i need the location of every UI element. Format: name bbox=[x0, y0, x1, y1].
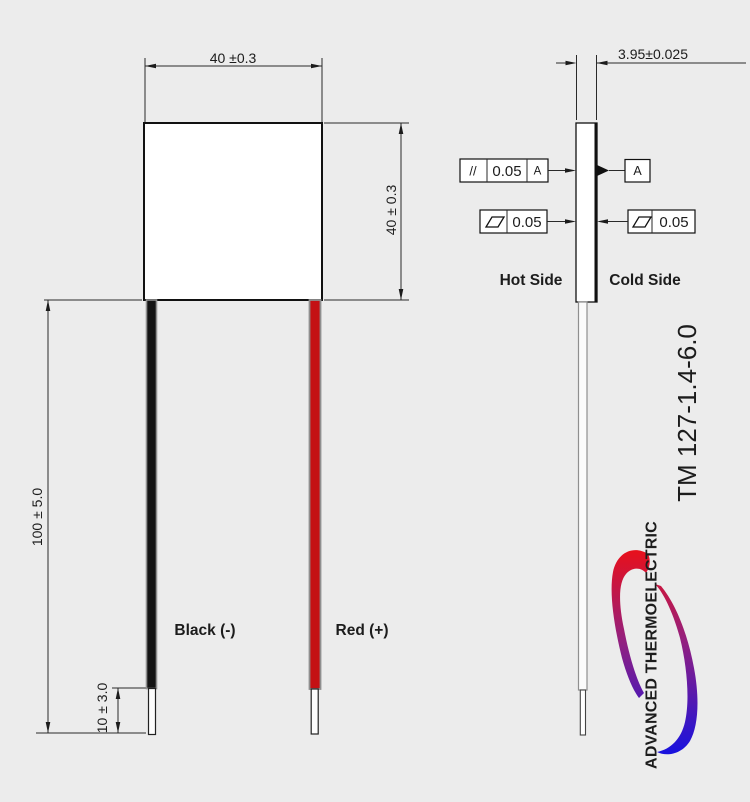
arrowhead-down-icon bbox=[116, 722, 121, 733]
thickness-dimension-text: 3.95±0.025 bbox=[618, 46, 688, 62]
side-lead-wire bbox=[579, 302, 588, 735]
arrowhead-up-icon bbox=[46, 300, 51, 311]
red-lead-label: Red (+) bbox=[336, 622, 389, 639]
flatness-frame-cold: 0.05 bbox=[597, 210, 695, 233]
arrowhead-left-icon bbox=[145, 64, 156, 69]
hot-side-label: Hot Side bbox=[500, 272, 563, 289]
red-wire-bare-tip bbox=[311, 689, 318, 734]
black-wire-insulation bbox=[147, 300, 157, 689]
black-lead-wire bbox=[147, 300, 157, 735]
arrowhead-down-icon bbox=[399, 289, 404, 300]
side-wire-insulation bbox=[579, 302, 588, 690]
arrowhead-up-icon bbox=[399, 123, 404, 134]
lead-length-text: 100 ± 5.0 bbox=[29, 488, 45, 546]
side-wire-bare-tip bbox=[580, 690, 585, 735]
datum-flag: A bbox=[597, 160, 650, 183]
lead-length-dimension: 100 ± 5.0 bbox=[29, 300, 146, 733]
cold-side-label: Cold Side bbox=[609, 272, 681, 289]
logo-swoosh-right bbox=[655, 584, 697, 754]
height-dimension-text: 40 ± 0.3 bbox=[383, 185, 399, 236]
module-side-profile bbox=[576, 123, 597, 302]
bare-lead-dimension: 10 ± 3.0 bbox=[94, 683, 147, 734]
module-front-face bbox=[144, 123, 322, 300]
arrowhead-down-icon bbox=[46, 722, 51, 733]
red-wire-insulation bbox=[310, 300, 321, 689]
arrowhead-right-icon bbox=[565, 168, 576, 173]
width-dimension: 40 ±0.3 bbox=[145, 50, 322, 122]
black-wire-bare-tip bbox=[149, 689, 156, 735]
arrowhead-right-icon bbox=[311, 64, 322, 69]
bare-lead-text: 10 ± 3.0 bbox=[94, 683, 110, 734]
parallelism-icon: // bbox=[469, 164, 477, 179]
thickness-dimension: 3.95±0.025 bbox=[556, 46, 746, 120]
arrowhead-left-icon bbox=[597, 61, 608, 66]
parallelism-tolerance: 0.05 bbox=[492, 163, 521, 180]
width-dimension-text: 40 ±0.3 bbox=[210, 50, 257, 66]
technical-drawing: 40 ±0.3 40 ± 0.3 100 ± 5.0 bbox=[0, 0, 750, 802]
flatness-tolerance: 0.05 bbox=[512, 214, 541, 231]
height-dimension: 40 ± 0.3 bbox=[324, 123, 409, 300]
brand-name: ADVANCED THERMOELECTRIC bbox=[644, 521, 661, 769]
part-number: TM 127-1.4-6.0 bbox=[672, 324, 702, 502]
parallelism-datum-ref: A bbox=[534, 166, 542, 178]
parallelism-control-frame: // 0.05 A bbox=[460, 159, 576, 182]
arrowhead-right-icon bbox=[566, 61, 577, 66]
side-view: 3.95±0.025 // 0.05 A A 0.05 bbox=[460, 46, 746, 735]
datum-triangle-icon bbox=[597, 165, 609, 176]
black-lead-label: Black (-) bbox=[174, 622, 235, 639]
arrowhead-right-icon bbox=[565, 219, 576, 224]
flatness-tolerance: 0.05 bbox=[659, 214, 688, 231]
arrowhead-up-icon bbox=[116, 688, 121, 699]
front-view: 40 ±0.3 40 ± 0.3 100 ± 5.0 bbox=[29, 50, 409, 735]
drawing-canvas: 40 ±0.3 40 ± 0.3 100 ± 5.0 bbox=[0, 0, 750, 802]
datum-label: A bbox=[633, 164, 642, 178]
brand-logo: ADVANCED THERMOELECTRIC bbox=[612, 521, 698, 769]
flatness-frame-hot: 0.05 bbox=[480, 210, 576, 233]
red-lead-wire bbox=[310, 300, 321, 734]
arrowhead-left-icon bbox=[597, 219, 608, 224]
